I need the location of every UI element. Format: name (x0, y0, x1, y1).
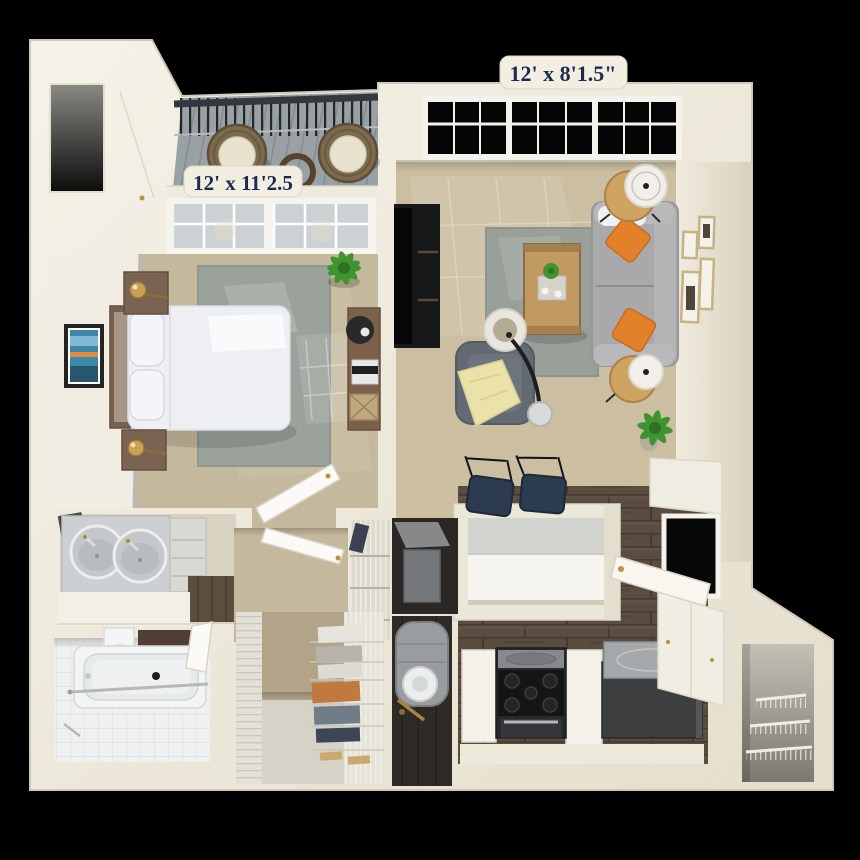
range-stove (496, 648, 566, 738)
base-cabinet (566, 650, 602, 748)
table-edge (524, 326, 580, 334)
vanity-sink (114, 530, 166, 582)
rod-end (68, 690, 73, 695)
pillow (130, 370, 164, 420)
door-knob (326, 474, 331, 479)
wall-art (64, 324, 104, 388)
cup (554, 290, 562, 298)
nightstand (124, 272, 168, 314)
desk (346, 308, 380, 430)
brass-lamp (128, 440, 144, 456)
cabinet-knob (710, 658, 714, 662)
bedroom-windows (166, 198, 376, 258)
water-heater-closet (392, 616, 452, 786)
living-room-windows (422, 96, 682, 160)
walk-in-closet (236, 612, 384, 784)
bathtub (74, 646, 206, 708)
lamp-highlight (131, 443, 136, 448)
tv-screen (394, 208, 412, 344)
bathroom (54, 622, 212, 762)
closet-left-wire (236, 612, 262, 784)
pantry-side-shadow (742, 644, 750, 782)
bedroom-dimension-tab: 12' x 11'2.5 (184, 166, 302, 197)
bed (110, 306, 290, 430)
table-edge (524, 244, 580, 252)
floorplan-render: 12' x 8'1.5" 12' x 11'2.5 (0, 0, 860, 860)
tub-faucet (85, 673, 91, 679)
lamp-base (528, 402, 552, 426)
front-entry-opening (50, 84, 104, 192)
pillow (130, 312, 164, 366)
kitchen-kick-band (460, 744, 704, 764)
bedroom (48, 250, 380, 534)
bar-counter (468, 554, 604, 600)
pantry (742, 644, 814, 782)
door-knob (618, 566, 624, 572)
sofa-back (654, 206, 676, 362)
brass-lamp (130, 282, 146, 298)
counter-lip (468, 600, 604, 605)
base-cabinet (462, 650, 496, 742)
headboard-panel (114, 312, 128, 422)
bedroom-dimension-label: 12' x 11'2.5 (193, 171, 293, 195)
cabinet-over-window (650, 458, 722, 514)
entry-door-knob (140, 196, 145, 201)
tv-console (394, 204, 440, 348)
kitchen (454, 454, 724, 764)
wicker-chair (319, 124, 377, 182)
desk-chair (346, 316, 374, 344)
living-room-dimension-label: 12' x 8'1.5" (510, 61, 617, 86)
breakfast-bar (454, 504, 620, 620)
floorplan-stage: 12' x 8'1.5" 12' x 11'2.5 (0, 0, 860, 860)
sofa (592, 202, 678, 366)
door-knob (336, 556, 341, 561)
counter (58, 592, 190, 626)
hvac-unit (404, 550, 440, 602)
desk-printer-band (352, 366, 378, 374)
desk-chair-detail (361, 328, 370, 337)
coffee-table (520, 244, 588, 344)
living-room-dimension-tab: 12' x 8'1.5" (500, 56, 627, 89)
hvac-closet (392, 518, 458, 614)
tub-drain (152, 672, 160, 680)
bar-top (468, 518, 604, 554)
table-plant-center (548, 268, 554, 274)
valve (399, 709, 405, 715)
vanity-area (58, 512, 236, 626)
nightstand (122, 430, 166, 470)
cabinet-knob (666, 640, 670, 644)
cup (541, 287, 549, 295)
lamp-highlight (133, 285, 138, 290)
duvet-highlight (208, 314, 286, 352)
